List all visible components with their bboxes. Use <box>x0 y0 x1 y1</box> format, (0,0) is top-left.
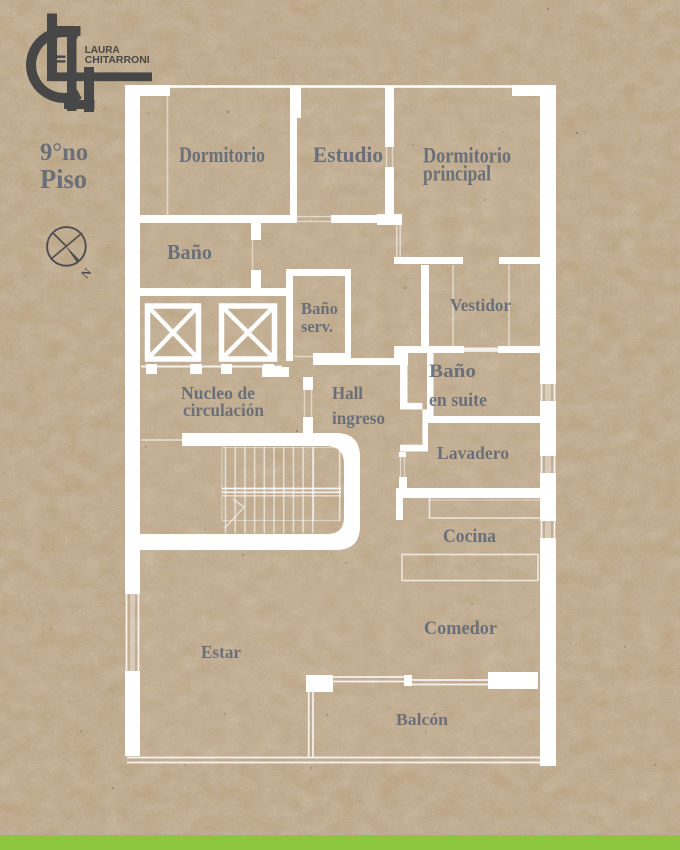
svg-text:Dormitorio: Dormitorio <box>179 142 265 167</box>
svg-text:9°no: 9°no <box>40 139 88 166</box>
svg-text:Lavadero: Lavadero <box>437 443 509 463</box>
svg-text:Comedor: Comedor <box>424 619 497 639</box>
svg-text:circulación: circulación <box>183 400 264 420</box>
svg-text:Estudio: Estudio <box>313 142 383 167</box>
svg-text:Balcón: Balcón <box>396 710 449 729</box>
svg-text:CHITARRONI: CHITARRONI <box>85 54 150 66</box>
svg-text:serv.: serv. <box>301 317 333 336</box>
svg-text:Hall: Hall <box>332 383 363 403</box>
svg-text:Piso: Piso <box>40 164 87 194</box>
svg-text:Baño: Baño <box>301 299 338 318</box>
svg-text:Estar: Estar <box>201 642 241 662</box>
svg-text:Baño: Baño <box>429 361 476 382</box>
svg-text:principal: principal <box>423 161 491 186</box>
svg-text:Vestidor: Vestidor <box>450 295 511 315</box>
svg-text:en suite: en suite <box>429 390 487 411</box>
svg-text:Baño: Baño <box>167 240 212 264</box>
svg-text:Cocina: Cocina <box>443 527 496 547</box>
svg-text:ingreso: ingreso <box>332 408 385 428</box>
